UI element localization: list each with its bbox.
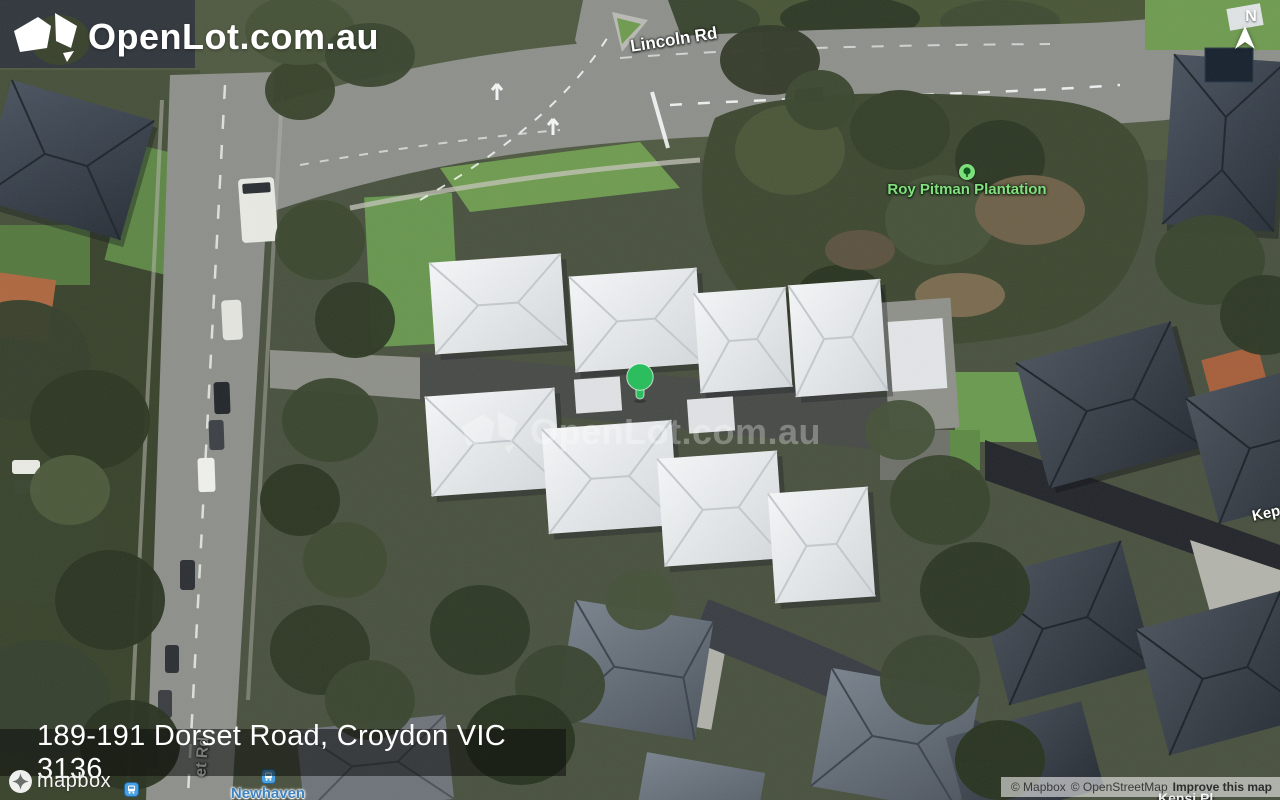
compass-n-label: N	[1241, 8, 1261, 26]
openlot-logo: OpenLot.com.au	[14, 10, 379, 64]
property-marker-pin	[624, 362, 656, 409]
improve-map-link[interactable]: Improve this map	[1173, 780, 1272, 794]
openlot-logo-icon	[14, 10, 78, 64]
osm-copyright-link[interactable]: © OpenStreetMap	[1071, 780, 1168, 794]
transit-stop-label-newhaven: Newhaven	[231, 785, 305, 800]
north-arrow-icon	[1233, 26, 1257, 50]
mapbox-wordmark: mapbox	[37, 770, 111, 793]
mapbox-copyright-link[interactable]: © Mapbox	[1011, 780, 1066, 794]
watermark: OpenLot.com.au	[462, 408, 821, 456]
north-compass: N	[1227, 8, 1261, 55]
watermark-text: OpenLot.com.au	[530, 411, 821, 453]
poi-label-roy-pitman-plantation: Roy Pitman Plantation	[887, 181, 1046, 198]
park-tree-icon	[959, 164, 975, 180]
mapbox-logo-icon	[8, 769, 33, 794]
mapbox-logo-link[interactable]: mapbox	[8, 769, 111, 794]
openlot-logo-icon	[462, 408, 518, 456]
property-address-text: 189-191 Dorset Road, Croydon VIC 3136	[37, 720, 566, 786]
tree-glyph	[962, 167, 972, 178]
attribution-bar: © Mapbox © OpenStreetMap Improve this ma…	[1001, 777, 1280, 797]
map-canvas[interactable]: Lincoln Rd Roy Pitman Plantation et Rd K…	[0, 0, 1280, 800]
marker-pin-glyph	[624, 362, 656, 404]
openlot-logo-text: OpenLot.com.au	[88, 16, 379, 58]
